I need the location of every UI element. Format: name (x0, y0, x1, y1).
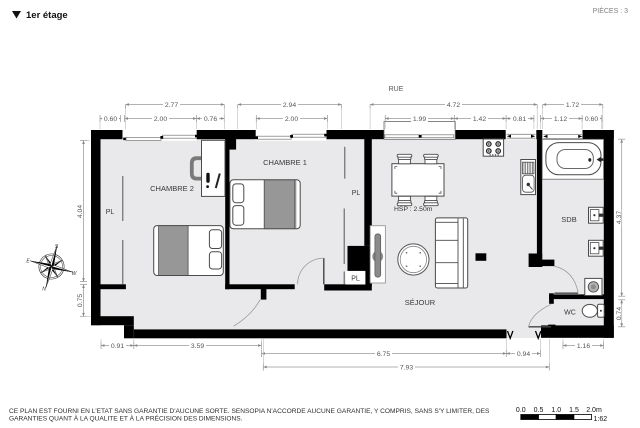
svg-text:2.00: 2.00 (154, 116, 167, 123)
svg-text:1.42: 1.42 (473, 116, 486, 123)
svg-text:WC: WC (564, 310, 576, 317)
svg-text:0.81: 0.81 (513, 116, 526, 123)
svg-text:CE PLAN EST FOURNI EN L'ETAT S: CE PLAN EST FOURNI EN L'ETAT SANS GARANT… (9, 408, 490, 415)
svg-text:CHAMBRE 2: CHAMBRE 2 (150, 184, 194, 193)
svg-text:0.74: 0.74 (616, 307, 623, 320)
svg-text:0.76: 0.76 (204, 116, 217, 123)
svg-text:1.72: 1.72 (566, 102, 579, 109)
svg-text:PL: PL (351, 276, 360, 283)
svg-text:0.60: 0.60 (585, 116, 598, 123)
svg-text:N: N (42, 287, 46, 293)
svg-text:2.00: 2.00 (285, 116, 298, 123)
svg-text:1.99: 1.99 (413, 116, 426, 123)
svg-text:PL: PL (106, 209, 115, 216)
svg-text:1.16: 1.16 (577, 343, 590, 350)
svg-text:0.60: 0.60 (104, 116, 117, 123)
svg-text:2.0m: 2.0m (586, 407, 602, 414)
svg-text:CHAMBRE 1: CHAMBRE 1 (263, 158, 307, 167)
svg-text:1er étage: 1er étage (26, 10, 68, 21)
svg-text:PIÈCES : 3: PIÈCES : 3 (593, 6, 629, 15)
svg-text:0.75: 0.75 (77, 294, 84, 307)
svg-text:0.5: 0.5 (534, 407, 544, 414)
svg-text:2.94: 2.94 (283, 102, 296, 109)
svg-text:RUE: RUE (389, 86, 404, 93)
svg-text:2.77: 2.77 (165, 102, 178, 109)
svg-text:GARANTIES QUANT À LA QUALITE E: GARANTIES QUANT À LA QUALITE ET À LA PRÉ… (9, 414, 243, 423)
svg-text:6.75: 6.75 (377, 351, 390, 358)
svg-text:PL: PL (352, 190, 361, 197)
svg-text:7.93: 7.93 (400, 365, 413, 372)
svg-text:4.72: 4.72 (447, 102, 460, 109)
svg-text:0.91: 0.91 (111, 343, 124, 350)
svg-text:SÉJOUR: SÉJOUR (405, 298, 436, 307)
svg-text:4.37: 4.37 (616, 211, 623, 224)
svg-text:1.5: 1.5 (569, 407, 579, 414)
svg-text:3.59: 3.59 (191, 343, 204, 350)
svg-text:1:62: 1:62 (594, 416, 608, 423)
svg-text:4.04: 4.04 (77, 205, 84, 218)
svg-text:0.0: 0.0 (516, 407, 526, 414)
svg-text:0.94: 0.94 (517, 351, 530, 358)
svg-text:SDB: SDB (561, 215, 576, 224)
svg-text:1.0: 1.0 (551, 407, 561, 414)
svg-text:1.12: 1.12 (554, 116, 567, 123)
svg-text:HSP : 2.50m: HSP : 2.50m (394, 206, 433, 213)
